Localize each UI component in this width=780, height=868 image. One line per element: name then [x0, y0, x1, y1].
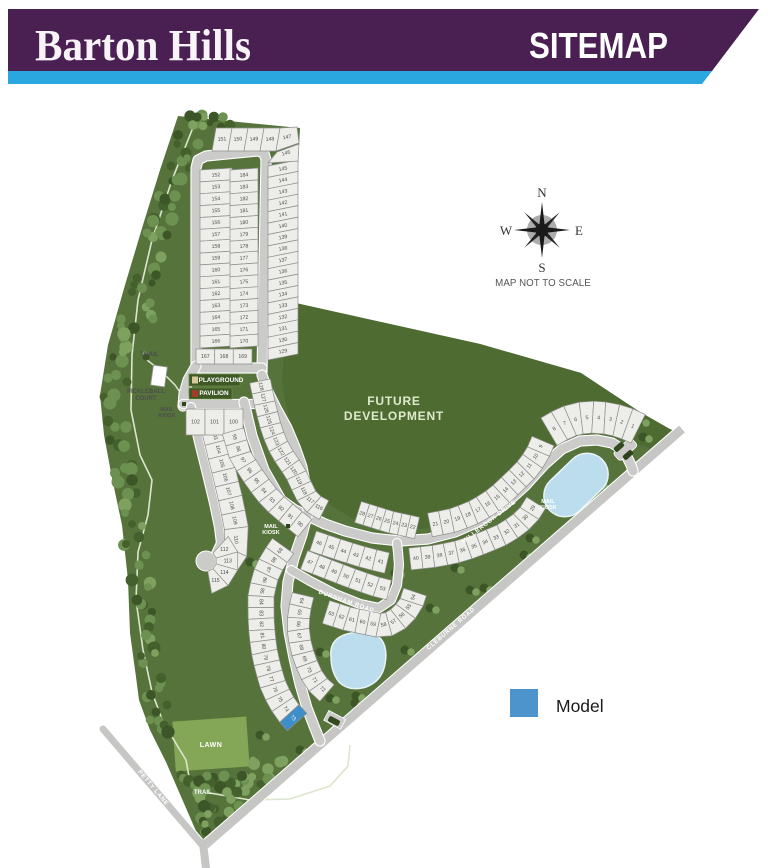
svg-text:65: 65: [296, 609, 303, 616]
svg-text:161: 161: [212, 279, 221, 286]
svg-text:174: 174: [240, 291, 249, 298]
svg-text:160: 160: [212, 267, 221, 274]
svg-text:115: 115: [211, 578, 219, 584]
svg-text:4: 4: [597, 415, 600, 421]
svg-text:183: 183: [240, 184, 249, 191]
svg-text:182: 182: [240, 196, 249, 203]
svg-text:181: 181: [240, 208, 249, 215]
svg-text:175: 175: [240, 279, 249, 286]
svg-text:176: 176: [240, 267, 249, 274]
svg-text:110: 110: [232, 535, 239, 544]
svg-text:168: 168: [220, 354, 229, 360]
svg-text:179: 179: [240, 232, 249, 239]
svg-text:TRAIL: TRAIL: [140, 351, 159, 358]
svg-text:83: 83: [258, 610, 264, 616]
svg-text:177: 177: [240, 255, 249, 262]
svg-text:151: 151: [218, 136, 227, 143]
svg-text:MAILKIOSK: MAILKIOSK: [262, 524, 279, 536]
svg-text:149: 149: [250, 136, 259, 143]
svg-text:162: 162: [212, 291, 221, 298]
svg-text:40: 40: [413, 556, 419, 563]
svg-text:LAWN: LAWN: [200, 742, 223, 749]
svg-text:178: 178: [240, 243, 249, 250]
svg-text:SITEMAP: SITEMAP: [529, 25, 668, 66]
svg-text:102: 102: [191, 420, 200, 426]
svg-text:113: 113: [224, 559, 232, 565]
svg-text:150: 150: [234, 136, 243, 143]
svg-text:Barton Hills: Barton Hills: [35, 21, 251, 70]
svg-text:180: 180: [240, 220, 249, 227]
svg-text:148: 148: [266, 136, 275, 143]
svg-text:PAVILION: PAVILION: [199, 390, 229, 397]
svg-text:173: 173: [240, 303, 249, 310]
svg-text:163: 163: [212, 303, 221, 310]
svg-text:158: 158: [212, 243, 221, 250]
svg-text:154: 154: [212, 196, 221, 203]
svg-text:164: 164: [212, 315, 221, 322]
svg-text:TRAIL: TRAIL: [194, 790, 212, 796]
svg-text:167: 167: [201, 354, 210, 360]
svg-text:PLAYGROUND: PLAYGROUND: [199, 377, 244, 384]
svg-text:112: 112: [220, 547, 228, 553]
svg-text:153: 153: [212, 184, 221, 191]
svg-text:165: 165: [212, 326, 221, 333]
svg-text:MAP NOT TO SCALE: MAP NOT TO SCALE: [495, 278, 591, 289]
svg-text:166: 166: [212, 338, 221, 345]
svg-text:157: 157: [212, 232, 221, 239]
svg-text:S: S: [538, 260, 545, 275]
svg-text:MAILKIOSK: MAILKIOSK: [539, 499, 556, 511]
svg-text:67: 67: [295, 633, 302, 640]
svg-text:155: 155: [212, 208, 221, 215]
svg-text:171: 171: [240, 326, 249, 333]
svg-text:156: 156: [212, 220, 221, 227]
svg-text:PETTY LANE: PETTY LANE: [136, 769, 169, 807]
svg-text:114: 114: [220, 570, 228, 576]
svg-text:152: 152: [212, 172, 221, 179]
svg-text:W: W: [500, 223, 513, 238]
svg-text:80: 80: [260, 643, 267, 650]
svg-text:Model: Model: [556, 696, 604, 716]
svg-text:MAILKIOSK: MAILKIOSK: [158, 407, 175, 419]
svg-text:39: 39: [424, 554, 430, 561]
svg-text:82: 82: [258, 621, 264, 627]
svg-text:172: 172: [240, 315, 249, 322]
svg-text:101: 101: [210, 420, 219, 426]
svg-text:81: 81: [258, 632, 265, 639]
svg-text:159: 159: [212, 255, 221, 262]
svg-text:84: 84: [257, 599, 263, 605]
svg-text:170: 170: [240, 338, 249, 345]
svg-text:100: 100: [229, 420, 238, 426]
svg-text:169: 169: [238, 354, 247, 360]
svg-text:N: N: [537, 185, 547, 200]
svg-text:184: 184: [240, 172, 249, 179]
svg-text:66: 66: [295, 621, 301, 627]
svg-text:E: E: [575, 223, 583, 238]
